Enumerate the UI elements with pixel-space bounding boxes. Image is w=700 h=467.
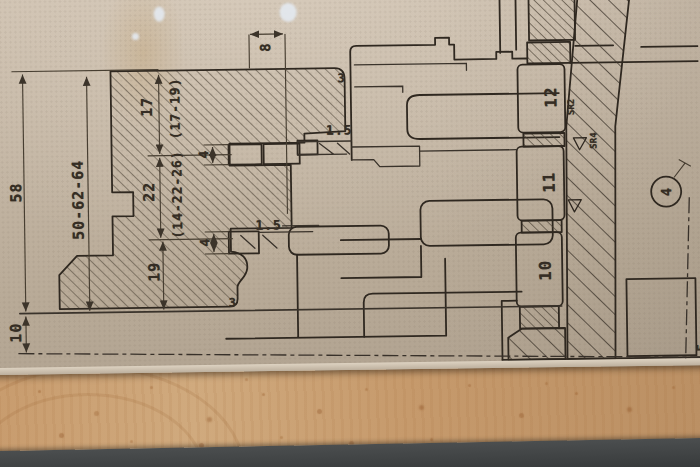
dim-22-label: 22 [140,182,158,202]
dim-10-left-label: 10 [7,323,25,343]
balloon-4-label: 4 [658,187,674,197]
drawing-labels: 58 10 50-62-64 17 (17-19) 22 (14-22-26) … [0,0,700,375]
dim-17-label: 17 [138,97,156,117]
photo-scene: 58 10 50-62-64 17 (17-19) 22 (14-22-26) … [0,0,700,467]
sr4-label: SR4 [588,132,598,148]
dim-19-label: 19 [145,262,163,282]
dim-58-label: 58 [7,183,25,203]
dim-4-lower-label: 4 [197,238,212,247]
radius-3-top-label: 3 [337,71,345,85]
part-10-label: 10 [536,260,555,282]
sr2-label: SR2 [566,99,576,115]
radius-3-bottom-label: 3 [228,296,236,310]
dim-14-22-26-label: (14-22-26) [169,150,185,238]
part-11-label: 11 [539,171,558,193]
edge-partial-text: Б [694,343,700,351]
dim-1-5-lower-label: 1.5 [255,217,282,232]
dim-50-62-64-label: 50-62-64 [69,160,88,240]
dim-4-upper-label: 4 [196,150,211,159]
part-12-label: 12 [541,86,560,108]
cardboard-sheet: 58 10 50-62-64 17 (17-19) 22 (14-22-26) … [0,0,700,375]
dim-1-5-upper-label: 1.5 [326,122,353,137]
dim-8-label: 8 [257,42,273,52]
dim-17-19-label: (17-19) [167,77,183,139]
